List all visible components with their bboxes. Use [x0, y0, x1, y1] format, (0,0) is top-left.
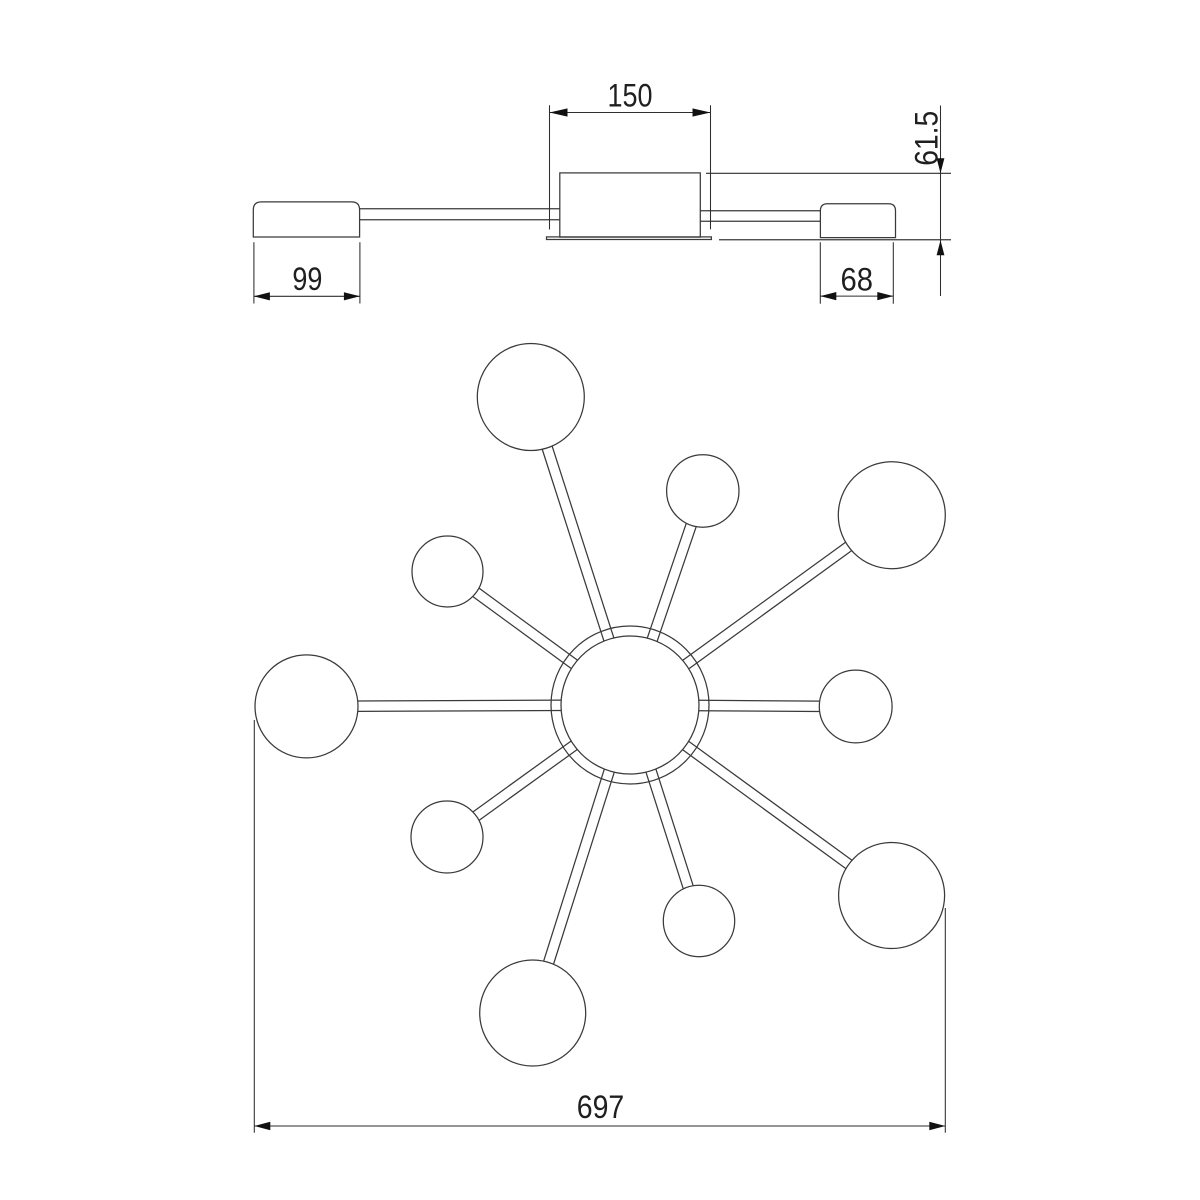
svg-text:697: 697 [577, 1089, 625, 1125]
svg-text:61.5: 61.5 [909, 111, 945, 166]
svg-text:68: 68 [840, 262, 873, 298]
svg-text:99: 99 [292, 261, 322, 297]
svg-text:150: 150 [608, 78, 653, 114]
